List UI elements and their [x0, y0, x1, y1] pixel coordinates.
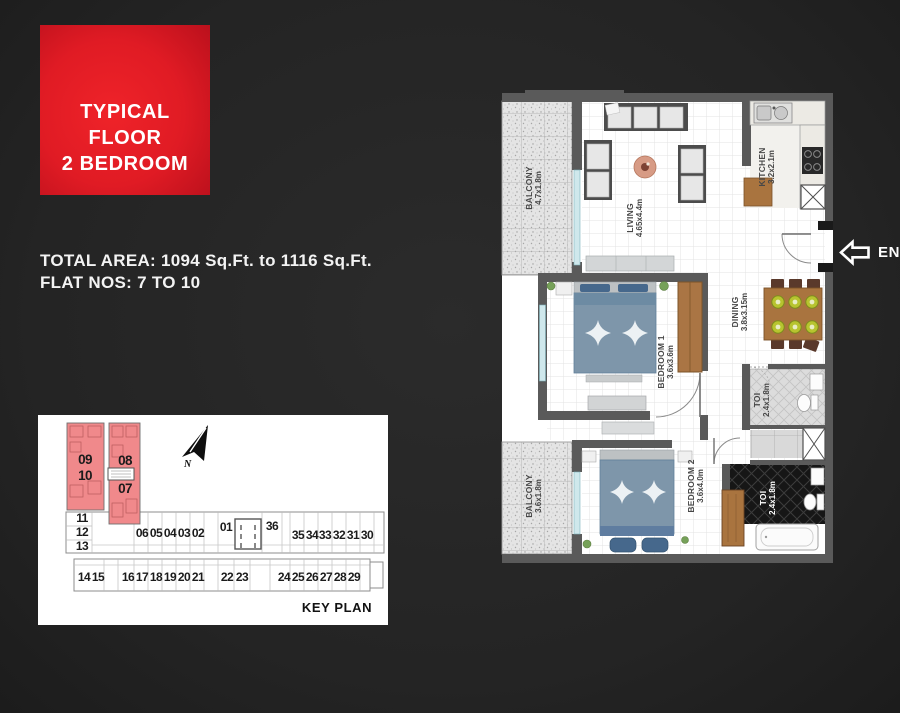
key-plan-title: KEY PLAN: [302, 600, 372, 615]
svg-text:TOI: TOI: [752, 393, 762, 408]
svg-text:3.6x3.6m: 3.6x3.6m: [666, 345, 675, 379]
svg-text:DINING: DINING: [730, 296, 740, 327]
svg-text:N: N: [183, 459, 192, 470]
keyplan-unit-20: 20: [178, 570, 191, 584]
floor-plan-drawing: BALCONY 4.7x1.8m LIVING 4.65x4.4m KITCHE…: [498, 90, 835, 568]
dining-furniture: [764, 279, 822, 352]
svg-text:2.4x1.8m: 2.4x1.8m: [768, 481, 777, 515]
keyplan-unit-27: 27: [320, 570, 333, 584]
keyplan-unit-25: 25: [292, 570, 305, 584]
flat-nos-text: FLAT NOS: 7 TO 10: [40, 272, 372, 294]
total-area-text: TOTAL AREA: 1094 Sq.Ft. to 1116 Sq.Ft.: [40, 250, 372, 272]
room-label-balcony-2: BALCONY 3.6x1.8m: [524, 474, 543, 518]
keyplan-unit-09: 09: [78, 452, 92, 467]
keyplan-unit-17: 17: [136, 570, 149, 584]
title-badge: TYPICAL FLOOR 2 BEDROOM: [40, 25, 210, 195]
badge-line-3: 2 BEDROOM: [62, 151, 189, 177]
svg-text:BEDROOM 2: BEDROOM 2: [686, 459, 696, 512]
room-label-living: LIVING 4.65x4.4m: [625, 199, 644, 237]
keyplan-unit-18: 18: [150, 570, 163, 584]
keyplan-unit-24: 24: [278, 570, 291, 584]
svg-text:BALCONY: BALCONY: [524, 166, 534, 210]
svg-text:TOI: TOI: [758, 491, 768, 506]
keyplan-unit-30: 30: [361, 528, 374, 542]
entry-jamb-bottom: [818, 263, 833, 272]
unit-info: TOTAL AREA: 1094 Sq.Ft. to 1116 Sq.Ft. F…: [40, 250, 372, 294]
entry-marker: ENTRY: [838, 239, 900, 266]
entry-jamb-top: [818, 221, 833, 230]
svg-text:LIVING: LIVING: [625, 203, 635, 233]
keyplan-unit-02: 02: [192, 526, 205, 540]
svg-text:BEDROOM 1: BEDROOM 1: [656, 335, 666, 388]
keyplan-unit-32: 32: [333, 528, 346, 542]
room-label-kitchen: KITCHEN 3.2x2.1m: [757, 147, 776, 186]
svg-text:3.2x2.1m: 3.2x2.1m: [767, 150, 776, 184]
svg-text:4.65x4.4m: 4.65x4.4m: [635, 199, 644, 237]
room-label-dining: DINING 3.8x3.15m: [730, 293, 749, 331]
svg-text:3.6x4.0m: 3.6x4.0m: [696, 469, 705, 503]
keyplan-unit-36: 36: [266, 519, 279, 533]
keyplan-unit-08: 08: [118, 453, 133, 468]
toilet-2-door: [722, 490, 744, 546]
keyplan-unit-28: 28: [334, 570, 347, 584]
keyplan-unit-35: 35: [292, 528, 305, 542]
keyplan-unit-31: 31: [347, 528, 360, 542]
badge-line-2: FLOOR: [89, 125, 162, 151]
key-plan-drawing: N: [38, 415, 388, 625]
shaft-box: [803, 428, 825, 460]
keyplan-unit-05: 05: [150, 526, 163, 540]
left-arrow-outline-icon: [838, 239, 871, 266]
svg-text:3.8x3.15m: 3.8x3.15m: [740, 293, 749, 331]
keyplan-unit-14: 14: [78, 570, 91, 584]
keyplan-unit-06: 06: [136, 526, 149, 540]
service-tiles-grid: [750, 430, 803, 458]
keyplan-unit-33: 33: [319, 528, 332, 542]
entry-label: ENTRY: [878, 244, 900, 261]
key-plan: N: [38, 415, 388, 625]
keyplan-unit-26: 26: [306, 570, 319, 584]
keyplan-unit-12: 12: [76, 525, 89, 539]
keyplan-unit-01: 01: [220, 520, 233, 534]
keyplan-unit-34: 34: [306, 528, 319, 542]
svg-text:KITCHEN: KITCHEN: [757, 147, 767, 186]
keyplan-unit-21: 21: [192, 570, 205, 584]
keyplan-unit-11: 11: [76, 511, 88, 525]
keyplan-unit-03: 03: [178, 526, 191, 540]
svg-text:4.7x1.8m: 4.7x1.8m: [534, 171, 543, 205]
badge-line-1: TYPICAL: [80, 99, 170, 125]
keyplan-unit-19: 19: [164, 570, 177, 584]
keyplan-unit-13: 13: [76, 539, 89, 553]
north-arrow-icon: N: [182, 425, 208, 470]
keyplan-unit-22: 22: [221, 570, 234, 584]
keyplan-unit-04: 04: [164, 526, 177, 540]
keyplan-unit-07: 07: [118, 481, 132, 496]
floor-plan: BALCONY 4.7x1.8m LIVING 4.65x4.4m KITCHE…: [498, 90, 835, 568]
keyplan-unit-23: 23: [236, 570, 249, 584]
keyplan-unit-29: 29: [348, 570, 361, 584]
keyplan-unit-10: 10: [78, 468, 92, 483]
room-label-balcony-1: BALCONY 4.7x1.8m: [524, 166, 543, 210]
svg-text:3.6x1.8m: 3.6x1.8m: [534, 479, 543, 513]
keyplan-unit-16: 16: [122, 570, 135, 584]
keyplan-highlight-wing-right: [108, 423, 140, 524]
svg-text:BALCONY: BALCONY: [524, 474, 534, 518]
svg-text:2.4x1.8m: 2.4x1.8m: [762, 383, 771, 417]
keyplan-unit-15: 15: [92, 570, 105, 584]
